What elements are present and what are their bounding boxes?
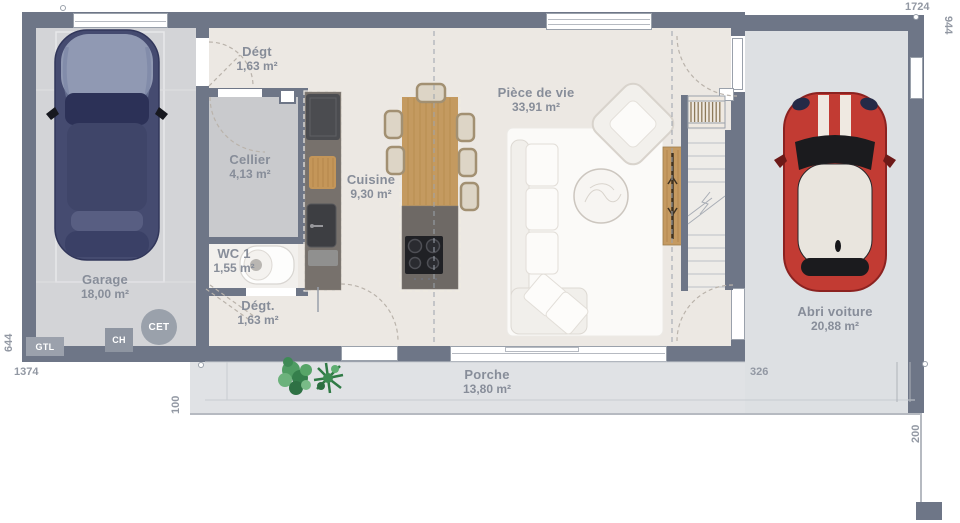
plan-overlay (0, 0, 960, 523)
dimension-right-lower: 200 (910, 425, 922, 443)
dimension-left: 644 (3, 334, 15, 352)
room-label-abri-voiture: Abri voiture 20,88 m² (797, 304, 872, 334)
dimension-bottom: 1374 (14, 366, 38, 378)
floor-plan: GTL CH CET Dégt 1,63 m² Cellier 4,13 m² … (0, 0, 960, 523)
car-blue (46, 30, 168, 260)
gtl-label: GTL (36, 342, 55, 352)
cet-circle: CET (141, 309, 177, 345)
cet-label: CET (149, 322, 170, 333)
gtl-box: GTL (26, 337, 64, 356)
car-red (774, 93, 896, 291)
dimension-abri-width: 326 (750, 366, 768, 378)
fridge (306, 94, 340, 140)
staircase (681, 95, 733, 291)
kitchen-counter (304, 91, 342, 291)
kitchen-island (400, 95, 460, 291)
room-label-porche: Porche 13,80 m² (463, 367, 511, 397)
coffee-table (574, 169, 628, 223)
room-label-degt-bottom: Dégt. 1,63 m² (237, 298, 278, 328)
room-label-cellier: Cellier 4,13 m² (229, 152, 270, 182)
room-label-cuisine: Cuisine 9,30 m² (347, 172, 395, 202)
plant-icon-2 (314, 363, 343, 393)
room-label-piece-de-vie: Pièce de vie 33,91 m² (498, 85, 575, 115)
dimension-top: 1724 (905, 1, 929, 13)
ch-label: CH (112, 335, 126, 345)
room-label-garage: Garage 18,00 m² (81, 272, 129, 302)
dimension-right: 944 (942, 16, 954, 34)
plant-icon (278, 357, 312, 395)
ch-box: CH (105, 328, 133, 352)
dimension-porch-depth: 100 (170, 396, 182, 414)
room-label-degt-top: Dégt 1,63 m² (236, 44, 277, 74)
room-label-wc: WC 1 1,55 m² (213, 246, 254, 276)
